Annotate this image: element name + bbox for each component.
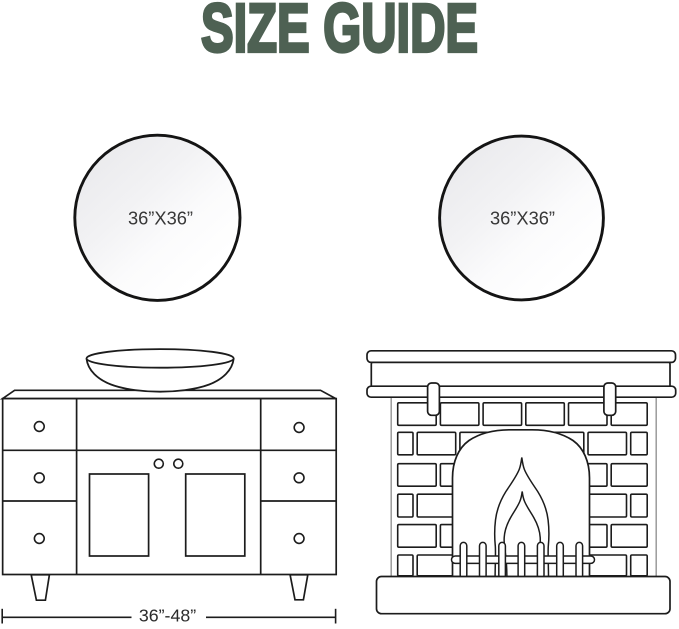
svg-text:36”X36”: 36”X36”: [490, 208, 555, 229]
svg-text:36”X36”: 36”X36”: [128, 208, 193, 229]
svg-text:SIZE GUIDE: SIZE GUIDE: [201, 0, 478, 66]
svg-text:36”-48”: 36”-48”: [139, 605, 196, 625]
